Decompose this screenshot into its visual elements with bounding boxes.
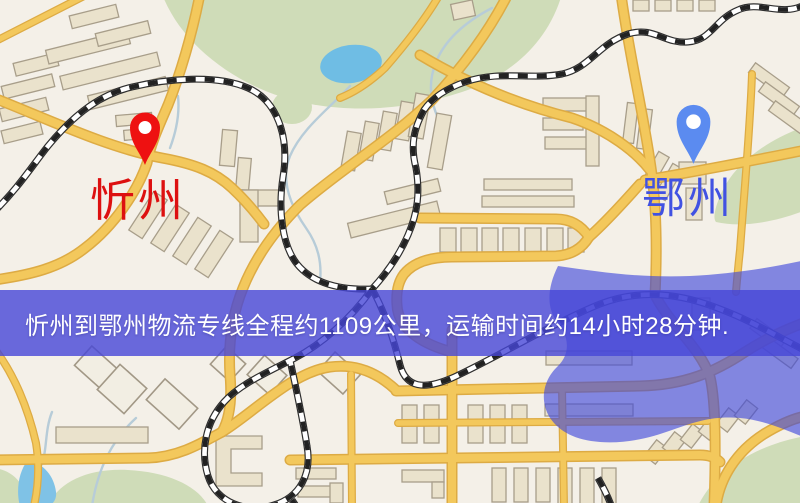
route-info-text: 忻州到鄂州物流专线全程约1109公里，运输时间约14小时28分钟. bbox=[25, 306, 729, 341]
route-info-banner: 忻州到鄂州物流专线全程约1109公里，运输时间约14小时28分钟. bbox=[0, 290, 800, 356]
origin-pin-icon[interactable] bbox=[125, 104, 165, 172]
map-screenshot: 忻州到鄂州物流专线全程约1109公里，运输时间约14小时28分钟. 忻州 鄂州 bbox=[0, 0, 800, 503]
map-canvas[interactable] bbox=[0, 0, 800, 503]
destination-pin-icon[interactable] bbox=[671, 102, 716, 165]
destination-city-label: 鄂州 bbox=[642, 178, 734, 221]
origin-city-label: 忻州 bbox=[90, 178, 186, 223]
